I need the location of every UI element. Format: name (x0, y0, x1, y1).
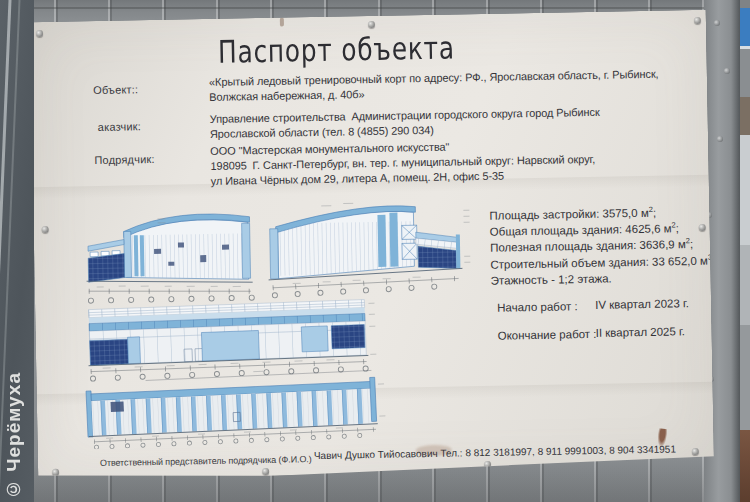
blue-sign (739, 8, 750, 46)
main-facade-elevation (87, 299, 377, 379)
screw-icon (262, 468, 269, 475)
stat-text: Строительный объем здания: 33 652,0 м (490, 254, 708, 270)
bolt-icon (717, 136, 723, 142)
building-stats: Площадь застройки: 3575,0 м2; Общая площ… (489, 204, 708, 289)
side-elevation-left (85, 213, 253, 301)
building-elevation-drawings (81, 196, 489, 449)
stat-text: Полезная площадь здания: 3636,9 м (490, 238, 686, 254)
background-sliver (739, 0, 750, 502)
long-facade-elevation (85, 366, 386, 448)
stat-text: Этажность - 1;2 этажа. (491, 272, 612, 286)
stat-tail: ; (676, 222, 679, 234)
work-end-label: Окончание работ : (498, 328, 597, 342)
sliver-gray (739, 49, 750, 97)
stat-tail: ; (690, 238, 693, 250)
field-label-contractor: Подрядчик: (94, 153, 155, 166)
sliver-gray-top (739, 0, 750, 8)
stat-text: Общая площадь здания: 4625,6 м (490, 223, 672, 238)
screw-icon (52, 469, 59, 476)
responsible-representative-label: Ответственный представитель подрядчика (… (100, 454, 312, 468)
field-label-customer: аказчик: (98, 120, 141, 133)
stat-text: Площадь застройки: 3575,0 м (489, 207, 648, 222)
screw-icon (692, 448, 699, 455)
stat-tail: ; (653, 207, 656, 219)
stat-line: Этажность - 1;2 этажа. (491, 269, 709, 289)
bolt-icon (724, 68, 730, 74)
photographer-watermark: © Черёмуха (3, 372, 25, 500)
field-label-object: Объект:: (93, 83, 138, 96)
construction-passport-photo: Паспорт объекта Объект:: «Крытый ледовый… (0, 0, 750, 502)
board-title: Паспорт объекта (91, 27, 581, 72)
screw-icon (42, 226, 49, 233)
field-value-object: «Крытый ледовый тренировочный корт по ад… (209, 68, 659, 106)
screw-icon (36, 30, 43, 37)
rust-streak (739, 97, 750, 135)
responsible-representative-value: Чавич Душко Тийосавович Тел.: 8 812 3181… (314, 443, 676, 461)
hazy-background (739, 135, 750, 245)
hazy-background-2 (739, 245, 750, 325)
drip-stain (280, 18, 284, 27)
work-start-value: IV квартал 2023 г. (595, 297, 689, 311)
screw-icon (694, 17, 701, 24)
work-start-label: Начало работ : (497, 300, 578, 313)
field-value-contractor: ООО "Мастерская монументального искусств… (210, 138, 595, 190)
field-value-customer: Управление строительства Администрации г… (210, 106, 601, 143)
screw-icon (368, 21, 375, 28)
dirt-ground (739, 430, 750, 502)
sliver-gray-lower (739, 325, 750, 430)
side-elevation-right (267, 201, 471, 295)
bolt-icon (714, 20, 720, 26)
work-end-value: II квартал 2025 г. (596, 325, 686, 339)
fence-rail-line (0, 7, 750, 9)
passport-board: Паспорт объекта Объект:: «Крытый ледовый… (30, 10, 714, 480)
